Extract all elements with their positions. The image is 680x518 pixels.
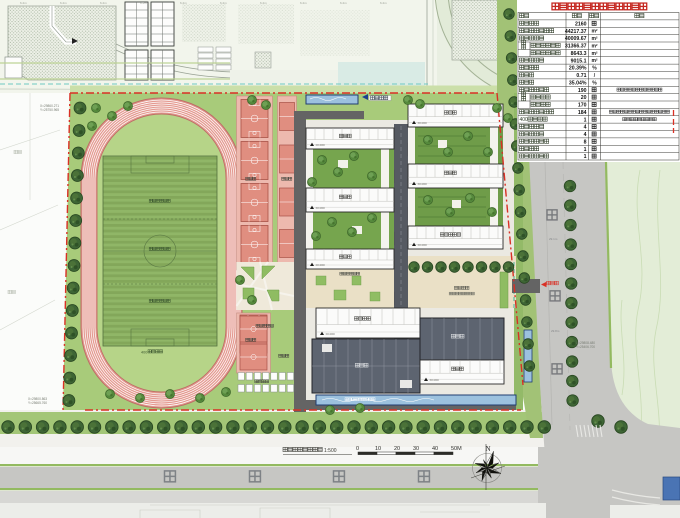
svg-text:Y=25665.760: Y=25665.760: [28, 401, 47, 405]
svg-text:±0.000: ±0.000: [316, 263, 325, 267]
svg-text:35.04%: 35.04%: [569, 80, 587, 86]
svg-text:1: 1: [584, 147, 587, 153]
svg-text:±0.000: ±0.000: [326, 332, 335, 336]
svg-text:400: 400: [520, 117, 529, 123]
svg-text:2160: 2160: [575, 21, 587, 27]
svg-text:31366.37: 31366.37: [565, 44, 587, 50]
svg-text:6.2m: 6.2m: [180, 1, 187, 5]
svg-text:1: 1: [584, 117, 587, 123]
svg-text:170: 170: [578, 103, 587, 109]
svg-text:±0.000: ±0.000: [418, 121, 427, 125]
svg-text:1: 1: [584, 154, 587, 160]
svg-text:%: %: [592, 80, 597, 86]
svg-text:6.2m: 6.2m: [100, 1, 107, 5]
svg-text:6.2m: 6.2m: [220, 1, 227, 5]
svg-text:m²: m²: [591, 51, 597, 57]
svg-text:10: 10: [375, 446, 381, 452]
svg-text:6.2m: 6.2m: [380, 1, 387, 5]
svg-text:4: 4: [584, 132, 587, 138]
svg-text:400: 400: [141, 351, 147, 355]
svg-text:±0.000: ±0.000: [430, 378, 439, 382]
svg-text:190: 190: [578, 88, 587, 94]
svg-text:Y=25406.700: Y=25406.700: [576, 345, 595, 349]
svg-text:29.1m: 29.1m: [549, 237, 558, 241]
svg-text:20: 20: [394, 446, 400, 452]
svg-text:6.2m: 6.2m: [140, 1, 147, 5]
svg-text:40: 40: [432, 446, 438, 452]
svg-text:0.71: 0.71: [576, 73, 586, 79]
svg-text:8: 8: [584, 139, 587, 145]
svg-text:6.2m: 6.2m: [260, 1, 267, 5]
svg-text:%: %: [592, 66, 597, 72]
svg-text:±0.000: ±0.000: [316, 143, 325, 147]
svg-text:6.2m: 6.2m: [60, 1, 67, 5]
svg-text:9015.1: 9015.1: [571, 58, 587, 64]
svg-text:44217.37: 44217.37: [565, 29, 587, 35]
svg-text:8643.3: 8643.3: [571, 51, 587, 57]
svg-text:4: 4: [584, 125, 587, 131]
svg-text:m²: m²: [591, 58, 597, 64]
svg-text:6.2m: 6.2m: [300, 1, 307, 5]
svg-text:6.2m: 6.2m: [340, 1, 347, 5]
svg-text:m²: m²: [591, 36, 597, 42]
svg-text:6.2m: 6.2m: [20, 1, 27, 5]
svg-text:m²: m²: [591, 43, 597, 49]
svg-text:40009.67: 40009.67: [565, 36, 587, 42]
svg-text:1:500: 1:500: [324, 448, 337, 454]
svg-text:20: 20: [581, 95, 587, 101]
svg-text:0: 0: [356, 446, 359, 452]
svg-text:±0.000: ±0.000: [418, 243, 427, 247]
svg-text:Y=25750.965: Y=25750.965: [40, 108, 59, 112]
svg-text:m²: m²: [591, 29, 597, 35]
svg-text:±0.000: ±0.000: [316, 206, 325, 210]
svg-text:30: 30: [413, 446, 419, 452]
svg-text:20.39%: 20.39%: [569, 66, 587, 72]
svg-text:±0.000: ±0.000: [418, 182, 427, 186]
svg-text:50M: 50M: [451, 446, 462, 452]
svg-text:184: 184: [578, 110, 587, 116]
svg-text:29.8m: 29.8m: [551, 329, 560, 333]
